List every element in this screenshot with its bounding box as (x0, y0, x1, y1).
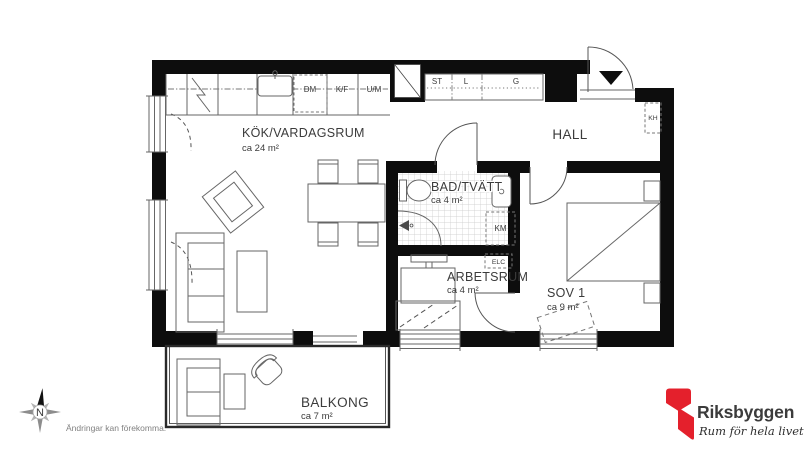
window-bottom-bedroom (540, 329, 597, 351)
window-swing-dashed (171, 114, 191, 151)
sofa-icon (176, 233, 224, 332)
monitor-icon (411, 255, 447, 262)
window-bottom-office (400, 329, 460, 351)
stove-icon (192, 78, 210, 112)
floorplan-page: KÖK/VARDAGSRUM ca 24 m² HALL BAD/TVÄTT c… (0, 0, 810, 455)
compass-north-letter: N (36, 407, 44, 419)
label-kitchen-living-area: ca 24 m² (242, 143, 279, 154)
floorplan-drawing: KÖK/VARDAGSRUM ca 24 m² HALL BAD/TVÄTT c… (0, 0, 810, 455)
label-balcony: BALKONG (301, 395, 369, 410)
armchair-icon (202, 171, 263, 233)
riksbyggen-logo: Riksbyggen Rum för hela livet (666, 389, 804, 440)
label-washing-machine: KM (495, 224, 507, 233)
bedroom-door (530, 167, 567, 204)
kitchen-counter (166, 71, 390, 115)
window-swing-dashed (171, 242, 192, 285)
compass-rose: N (19, 388, 61, 433)
label-office-area: ca 4 m² (447, 285, 479, 296)
hall-closets (425, 74, 543, 100)
label-balcony-area: ca 7 m² (301, 411, 333, 422)
riksbyggen-flag-icon (666, 389, 694, 440)
dining-chairs-icon (318, 160, 378, 246)
label-coat-rack: KH (648, 115, 658, 122)
bedroom-furniture (537, 181, 660, 343)
office-door (475, 293, 515, 332)
label-bath-area: ca 4 m² (431, 195, 463, 206)
balcony-railing (166, 346, 389, 427)
living-furniture (176, 160, 385, 332)
window-left-kitchen (146, 96, 191, 152)
label-bath: BAD/TVÄTT (431, 180, 503, 194)
coffee-table-icon (237, 251, 267, 312)
logo-brand-text: Riksbyggen (697, 402, 794, 422)
label-oven-microwave: U/M (367, 85, 382, 94)
nightstand-icon (644, 181, 660, 201)
label-kitchen-living: KÖK/VARDAGSRUM (242, 126, 365, 140)
label-cleaning-closet: ST (432, 77, 442, 86)
label-bedroom-area: ca 9 m² (547, 302, 579, 313)
label-fridge-freezer: K/F (336, 85, 349, 94)
label-office: ARBETSRUM (447, 270, 528, 284)
label-dishwasher: DM (304, 85, 317, 94)
shaft (390, 60, 425, 102)
label-wardrobe: G (513, 77, 519, 86)
entrance-arrow-icon (599, 71, 623, 85)
nightstand-icon (644, 283, 660, 303)
logo-tagline-text: Rum för hela livet (698, 424, 804, 438)
label-electrical-cabinet: ELC (492, 259, 505, 266)
bathroom-door (435, 123, 477, 165)
label-linen-closet: L (464, 77, 469, 86)
dining-table-icon (308, 184, 385, 222)
entrance-door (580, 47, 635, 99)
window-left-living (146, 200, 192, 290)
balcony (166, 346, 389, 427)
label-hall: HALL (552, 127, 587, 142)
toilet-icon (407, 180, 431, 201)
disclaimer-text: Ändringar kan förekomma. (66, 423, 166, 433)
label-bedroom: SOV 1 (547, 286, 585, 300)
toilet-tank (400, 180, 407, 201)
